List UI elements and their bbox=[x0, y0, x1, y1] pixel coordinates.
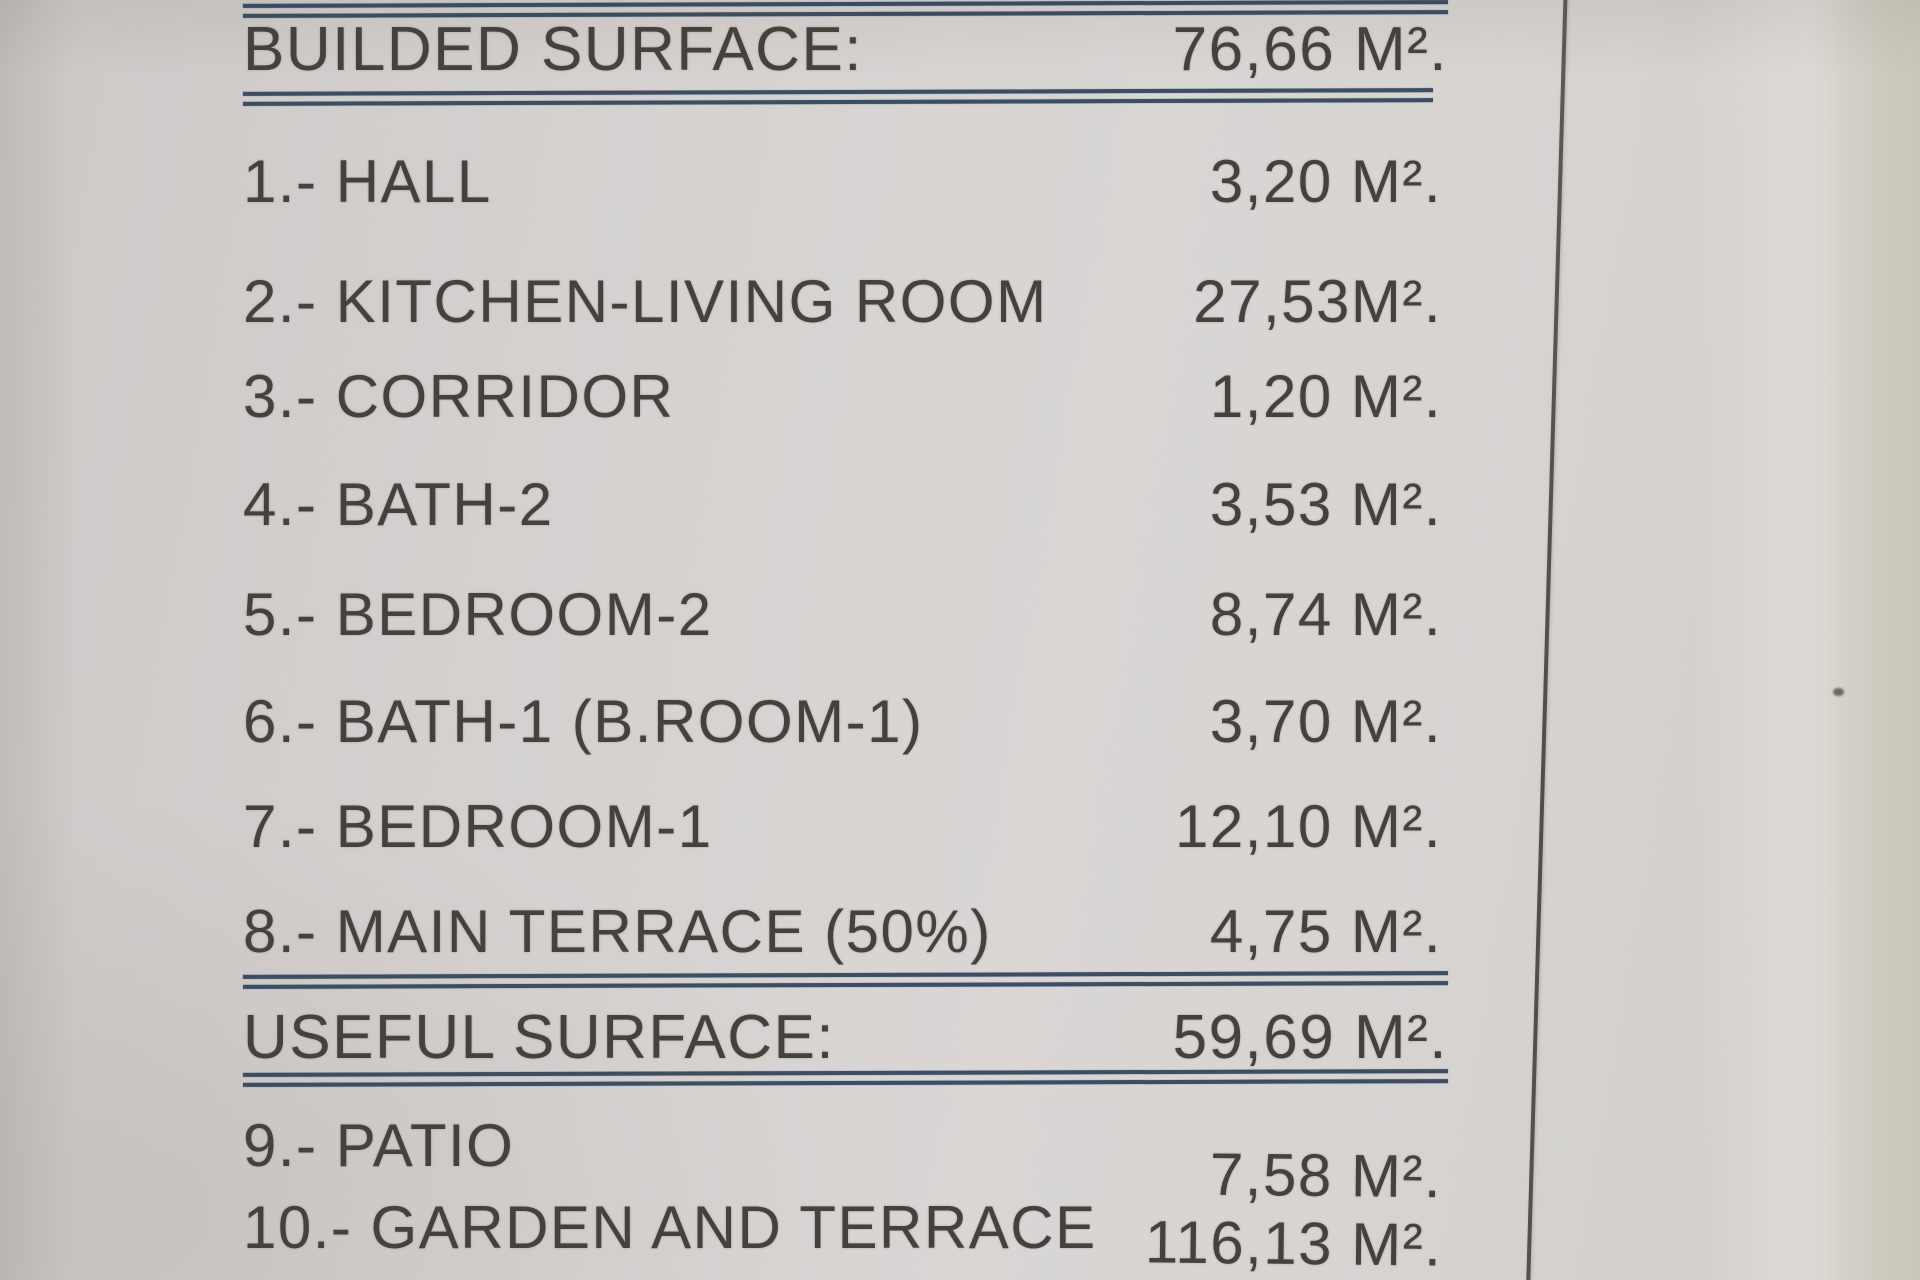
double-rule-before-useful bbox=[243, 971, 1448, 995]
room-label: 6.- BATH-1 (B.ROOM-1) bbox=[243, 687, 923, 757]
room-row-bath-2: 4.- BATH-2 3,53 M². bbox=[243, 470, 1448, 540]
room-label: 5.- BEDROOM-2 bbox=[243, 580, 713, 650]
room-row-bath-1: 6.- BATH-1 (B.ROOM-1) 3,70 M². bbox=[243, 687, 1448, 757]
room-row-patio: 9.- PATIO 7,58 M². bbox=[243, 1111, 1448, 1181]
section-header-label: BUILDED SURFACE: bbox=[243, 15, 863, 85]
area-value: 3,53 M². bbox=[1210, 470, 1448, 540]
section-header-label: USEFUL SURFACE: bbox=[243, 1003, 835, 1073]
section-header-value: 76,66 M². bbox=[1173, 15, 1448, 85]
room-label: 1.- HALL bbox=[243, 147, 492, 217]
area-value: 27,53M². bbox=[1193, 267, 1448, 337]
room-row-bedroom-1: 7.- BEDROOM-1 12,10 M². bbox=[243, 792, 1448, 862]
area-value: 4,75 M². bbox=[1210, 897, 1448, 967]
room-label: 9.- PATIO bbox=[243, 1111, 514, 1181]
room-label: 7.- BEDROOM-1 bbox=[243, 792, 713, 862]
area-value: 3,20 M². bbox=[1210, 147, 1448, 217]
double-rule-after-useful bbox=[243, 1069, 1448, 1093]
room-label: 3.- CORRIDOR bbox=[243, 362, 674, 432]
room-label: 4.- BATH-2 bbox=[243, 470, 554, 540]
room-row-kitchen-living-room: 2.- KITCHEN-LIVING ROOM 27,53M². bbox=[243, 267, 1448, 337]
surface-table: BUILDED SURFACE: 76,66 M². 1.- HALL 3,20… bbox=[0, 0, 1920, 1280]
double-rule-after-builded bbox=[243, 88, 1433, 112]
room-label: 2.- KITCHEN-LIVING ROOM bbox=[243, 267, 1048, 337]
area-value: 1,20 M². bbox=[1210, 362, 1448, 432]
room-label: 8.- MAIN TERRACE (50%) bbox=[243, 897, 992, 967]
area-value: 8,74 M². bbox=[1210, 580, 1448, 650]
room-label: 10.- GARDEN AND TERRACE bbox=[243, 1193, 1097, 1263]
section-header-value: 59,69 M². bbox=[1173, 1003, 1448, 1073]
room-row-main-terrace: 8.- MAIN TERRACE (50%) 4,75 M². bbox=[243, 897, 1448, 967]
room-row-bedroom-2: 5.- BEDROOM-2 8,74 M². bbox=[243, 580, 1448, 650]
room-row-hall: 1.- HALL 3,20 M². bbox=[243, 147, 1448, 217]
double-rule-top bbox=[243, 0, 1448, 24]
room-row-garden-and-terrace: 10.- GARDEN AND TERRACE 116,13 M². bbox=[243, 1193, 1448, 1263]
room-row-corridor: 3.- CORRIDOR 1,20 M². bbox=[243, 362, 1448, 432]
area-value: 12,10 M². bbox=[1175, 792, 1448, 862]
section-header-row-useful: USEFUL SURFACE: 59,69 M². bbox=[243, 1003, 1448, 1073]
area-value: 3,70 M². bbox=[1210, 687, 1448, 757]
area-value: 116,13 M². bbox=[1144, 1207, 1448, 1280]
section-header-row-builded: BUILDED SURFACE: 76,66 M². bbox=[243, 15, 1448, 85]
